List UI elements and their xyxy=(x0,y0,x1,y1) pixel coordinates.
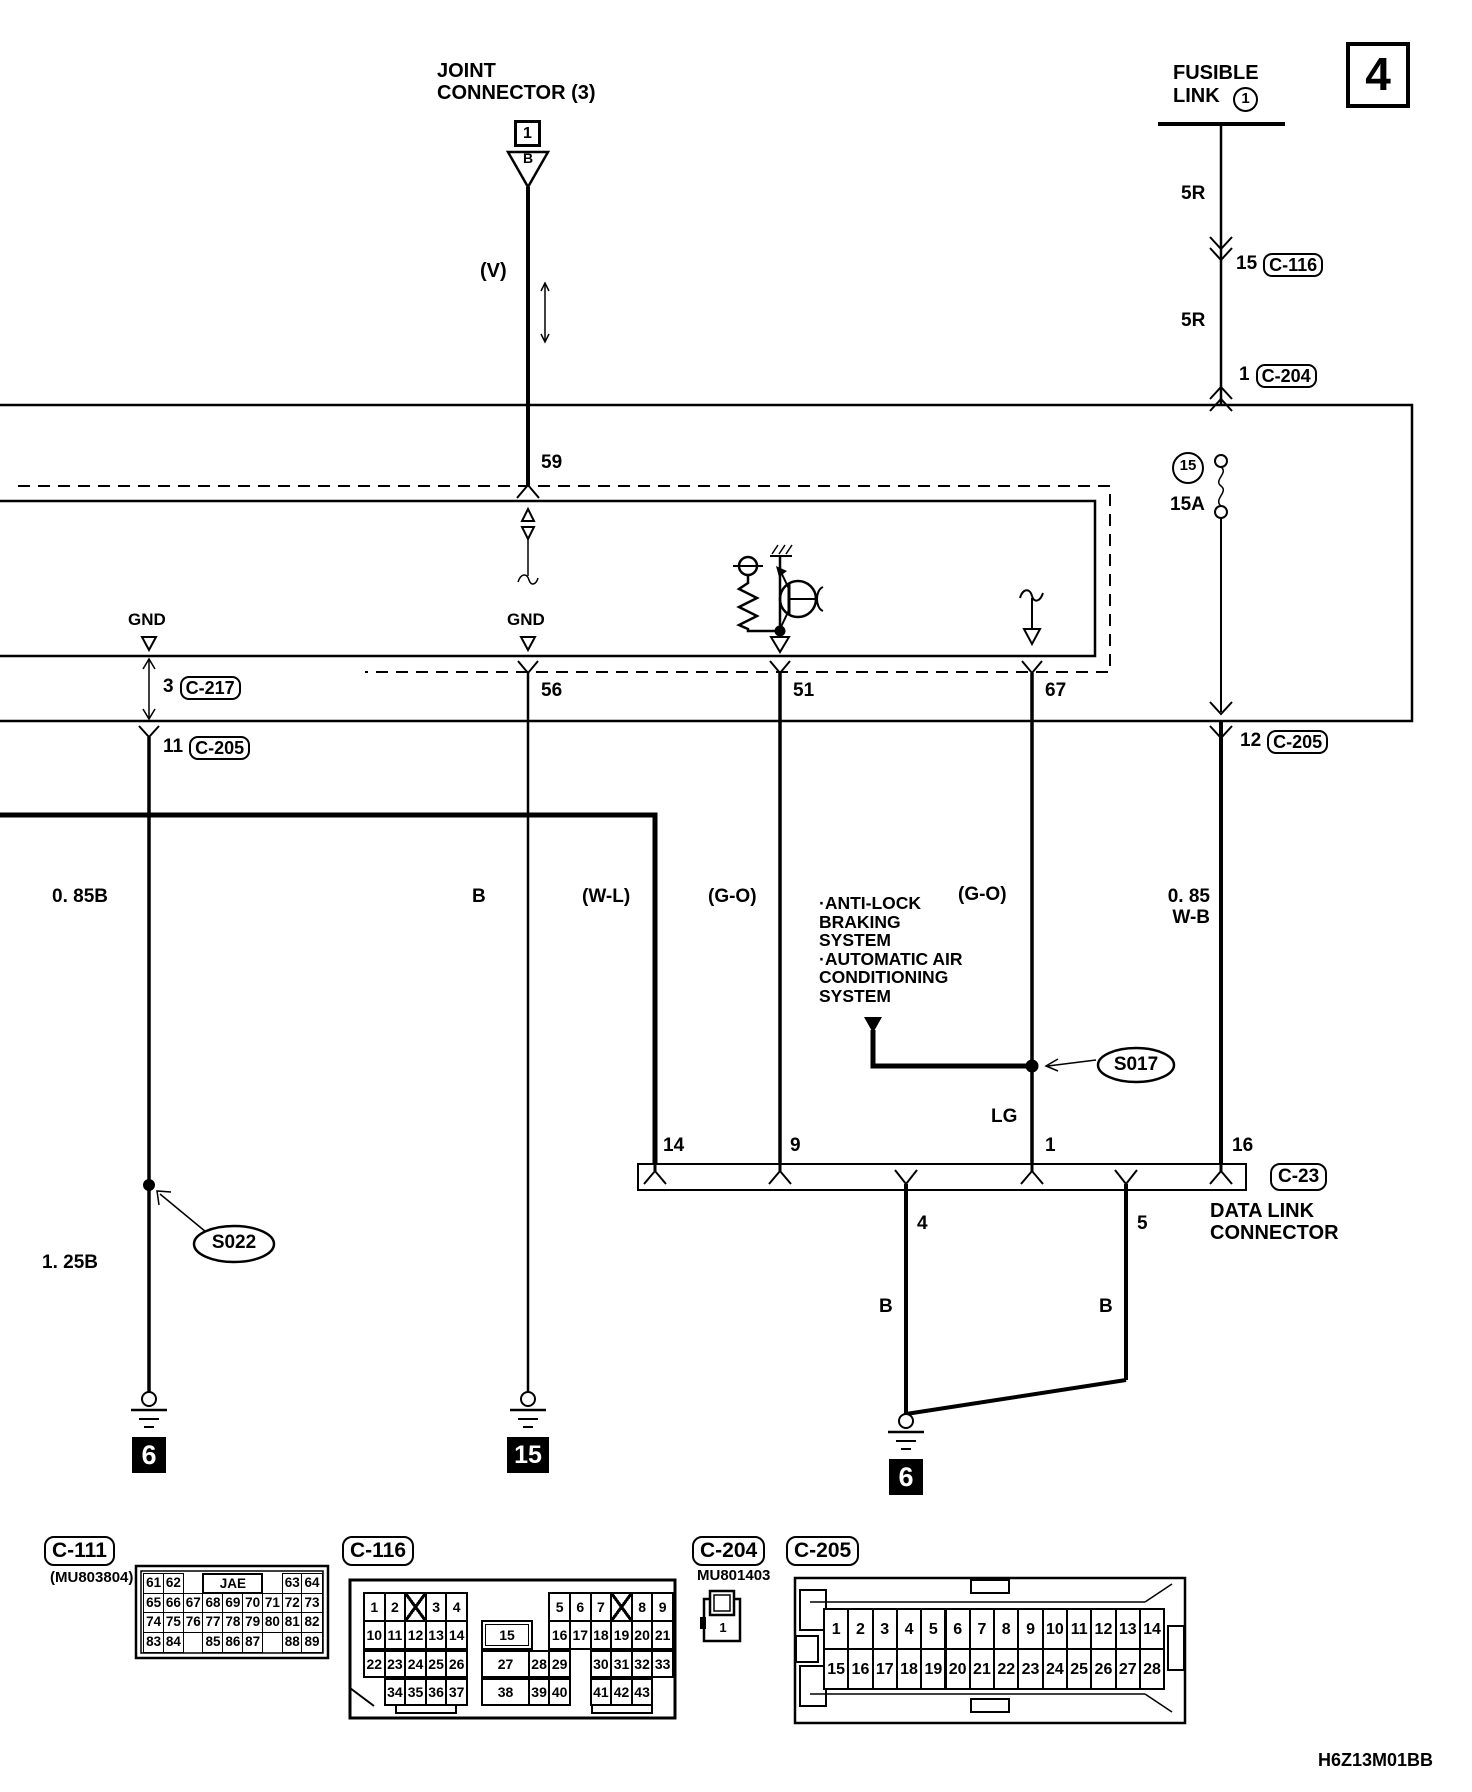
c205-pin-6: 6 xyxy=(945,1608,971,1650)
connector-part-c204: MU801403 xyxy=(697,1568,770,1585)
transistor-symbol xyxy=(733,545,823,652)
joint-connector-number-box: 1 xyxy=(514,120,541,147)
c205-pin-28: 28 xyxy=(1139,1648,1165,1690)
c111-pin-78: 78 xyxy=(222,1612,243,1633)
c111-pin-61: 61 xyxy=(143,1573,164,1594)
c111-pin-63: 63 xyxy=(282,1573,303,1594)
ground-symbol-dlc xyxy=(888,1414,924,1449)
c205-pin-18: 18 xyxy=(896,1648,922,1690)
c205-pin-23: 23 xyxy=(1017,1648,1043,1690)
connector-label-c111: C-111 xyxy=(44,1536,115,1566)
c111-pin-74: 74 xyxy=(143,1612,164,1633)
ecu-inner-box xyxy=(0,501,1095,656)
c116-pin-18: 18 xyxy=(590,1620,613,1650)
c111-pin-87: 87 xyxy=(242,1632,263,1653)
c111-pin-89: 89 xyxy=(301,1632,322,1653)
c204-pin-1: 1 xyxy=(712,1621,734,1636)
ground-id-dlc: 6 xyxy=(889,1459,923,1495)
c111-pin-77: 77 xyxy=(202,1612,223,1633)
c116-pin-24: 24 xyxy=(404,1650,427,1678)
dlc-pin4-label: 4 xyxy=(917,1213,928,1234)
c116-pin-25: 25 xyxy=(425,1650,448,1678)
gnd-label-mid: GND xyxy=(507,610,545,629)
c116-pin-42: 42 xyxy=(610,1678,633,1706)
c111-pin-JAE: JAE xyxy=(202,1573,263,1594)
pin56-wire xyxy=(518,661,538,1392)
connector-label-c205: C-205 xyxy=(786,1536,859,1566)
c205-pin-1: 1 xyxy=(823,1608,849,1650)
c116-pin-blocked xyxy=(404,1592,427,1622)
c111-pin-67: 67 xyxy=(183,1593,204,1614)
pin59-label: 59 xyxy=(541,452,562,473)
abs-system-note: ·ANTI-LOCK BRAKING SYSTEM ·AUTOMATIC AIR… xyxy=(819,894,963,1006)
abs-branch-wire xyxy=(864,1017,1039,1073)
c116-pin-3: 3 xyxy=(425,1592,448,1622)
c116-pin-13: 13 xyxy=(425,1620,448,1650)
c116-pin-2: 2 xyxy=(384,1592,407,1622)
c116-pin-33: 33 xyxy=(651,1650,674,1678)
c116-pin-5: 5 xyxy=(548,1592,571,1622)
c205-pin-7: 7 xyxy=(969,1608,995,1650)
c116-pin-8: 8 xyxy=(631,1592,654,1622)
fuse-number: 15 xyxy=(1174,458,1202,475)
c205-pin-grid: 1234567891011121314151617181920212223242… xyxy=(823,1608,1167,1690)
wire-color-v: (V) xyxy=(480,260,507,282)
c205-pin-17: 17 xyxy=(872,1648,898,1690)
wire-5r-lower: 5R xyxy=(1181,310,1205,331)
c116-pin-19: 19 xyxy=(610,1620,633,1650)
c116-pin-30: 30 xyxy=(590,1650,613,1678)
c116-pin-17: 17 xyxy=(569,1620,592,1650)
c205-pin-9: 9 xyxy=(1017,1608,1043,1650)
wl-bus-wire xyxy=(0,815,655,1171)
c116-pin-21: 21 xyxy=(651,1620,674,1650)
wire-color-125b: 1. 25B xyxy=(42,1252,98,1273)
pin-3: 3 xyxy=(163,676,174,698)
data-link-connector-strip xyxy=(638,1164,1246,1190)
c116-pin-38: 38 xyxy=(481,1678,530,1706)
c205-pin-24: 24 xyxy=(1042,1648,1068,1690)
c111-pin-68: 68 xyxy=(202,1593,223,1614)
fusible-link-label-2: LINK xyxy=(1173,85,1220,107)
wire-color-go-1: (G-O) xyxy=(708,886,757,907)
fusible-link-number-circle: 1 xyxy=(1233,87,1258,112)
c111-pin-79: 79 xyxy=(242,1612,263,1633)
c116-pin-39: 39 xyxy=(528,1678,551,1706)
c116-pin-14: 14 xyxy=(445,1620,468,1650)
c116-pin-15: 15 xyxy=(481,1620,533,1650)
c205-pin-19: 19 xyxy=(920,1648,946,1690)
c116-pin-32: 32 xyxy=(631,1650,654,1678)
fuse-rating: 15A xyxy=(1170,494,1205,515)
c111-pin-80: 80 xyxy=(262,1612,283,1633)
dlc-pin5-label: 5 xyxy=(1137,1213,1148,1234)
connector-label-c116: C-116 xyxy=(342,1536,414,1566)
c116-pin-35: 35 xyxy=(404,1678,427,1706)
c116-pin-37: 37 xyxy=(445,1678,468,1706)
wire-color-b-dlc2: B xyxy=(1099,1296,1113,1317)
ground-symbol-mid xyxy=(510,1392,546,1427)
wire-color-085b: 0. 85B xyxy=(52,886,108,907)
c205-pin-3: 3 xyxy=(872,1608,898,1650)
c111-pin-82: 82 xyxy=(301,1612,322,1633)
c116-pin-34: 34 xyxy=(384,1678,407,1706)
pin56-label: 56 xyxy=(541,680,562,701)
splice-s017-label: S017 xyxy=(1098,1054,1174,1075)
pin67-wire xyxy=(1022,661,1042,1171)
dlc-pin1-label: 1 xyxy=(1045,1135,1056,1156)
connector-badge-c205a: C-205 xyxy=(189,736,250,760)
document-code: H6Z13M01BB xyxy=(1318,1750,1433,1770)
ecu-outer-box xyxy=(0,405,1412,721)
c205-pin-22: 22 xyxy=(993,1648,1019,1690)
c205-pin-25: 25 xyxy=(1066,1648,1092,1690)
ground-id-mid: 15 xyxy=(507,1437,549,1473)
c116-pin-4: 4 xyxy=(445,1592,468,1622)
c205-pin-2: 2 xyxy=(847,1608,873,1650)
wire-color-wl: (W-L) xyxy=(582,886,630,907)
joint-connector-label: JOINT CONNECTOR (3) xyxy=(437,60,596,105)
c205-pin-11: 11 xyxy=(1066,1608,1092,1650)
junction-connector-ref-c204: 1 C-204 xyxy=(1239,364,1317,388)
inline-connector-ref-c116: 15 C-116 xyxy=(1236,253,1323,277)
ecu-dashed-box xyxy=(18,486,1110,672)
c116-pin-40: 40 xyxy=(548,1678,571,1706)
wire-color-b-mid: B xyxy=(472,886,486,907)
pin-ref-11-c205: 11 C-205 xyxy=(163,736,250,760)
wire-color-lg: LG xyxy=(991,1106,1017,1127)
gnd-label-left: GND xyxy=(128,610,166,629)
c116-pin-28: 28 xyxy=(528,1650,551,1678)
c205-pin-5: 5 xyxy=(920,1608,946,1650)
gnd-triangle-left xyxy=(142,637,156,650)
c205-pin-27: 27 xyxy=(1115,1648,1141,1690)
c111-pin-64: 64 xyxy=(301,1573,322,1594)
c205-pin-12: 12 xyxy=(1090,1608,1116,1650)
ground-symbol-left xyxy=(131,1392,167,1427)
c116-pin-16: 16 xyxy=(548,1620,571,1650)
c116-pin-15-inner-box: 15 xyxy=(485,1624,529,1646)
joint-connector-triangle-code: B xyxy=(519,151,537,167)
c116-pin-12: 12 xyxy=(404,1620,427,1650)
connector-badge-c205b: C-205 xyxy=(1267,730,1328,754)
dlc-ground-wires xyxy=(906,1184,1126,1414)
connector-part-c111: (MU803804) xyxy=(50,1570,133,1587)
c111-pin-65: 65 xyxy=(143,1593,164,1614)
c111-pin-83: 83 xyxy=(143,1632,164,1653)
c111-pin-73: 73 xyxy=(301,1593,322,1614)
page-number-box: 4 xyxy=(1346,42,1410,108)
inline-pin-15: 15 xyxy=(1236,253,1257,275)
connector-badge-c23: C-23 xyxy=(1270,1163,1327,1191)
c205-pin-4: 4 xyxy=(896,1608,922,1650)
c116-pin-26: 26 xyxy=(445,1650,468,1678)
c205-pin-14: 14 xyxy=(1139,1608,1165,1650)
c116-pin-20: 20 xyxy=(631,1620,654,1650)
ground-id-left: 6 xyxy=(132,1437,166,1473)
c116-pin-43: 43 xyxy=(631,1678,654,1706)
connector-label-c204: C-204 xyxy=(692,1536,765,1566)
c111-pin-69: 69 xyxy=(222,1593,243,1614)
c116-pin-blocked xyxy=(610,1592,633,1622)
pin51-wire xyxy=(770,661,790,1171)
pin-ref-3-c217: 3 C-217 xyxy=(163,676,241,700)
gnd-triangle-mid xyxy=(521,637,535,650)
c111-pin-72: 72 xyxy=(282,1593,303,1614)
c205-pin-20: 20 xyxy=(945,1648,971,1690)
c111-pin-86: 86 xyxy=(222,1632,243,1653)
c116-pin-23: 23 xyxy=(384,1650,407,1678)
c116-pin-31: 31 xyxy=(610,1650,633,1678)
connector-badge-c204: C-204 xyxy=(1256,364,1317,388)
wire-color-go-2: (G-O) xyxy=(958,884,1007,905)
c111-pin-grid: 6162JAE636465666768697071727374757677787… xyxy=(143,1573,323,1653)
c205-pin-10: 10 xyxy=(1042,1608,1068,1650)
c116-pin-36: 36 xyxy=(425,1678,448,1706)
c205-pin-15: 15 xyxy=(823,1648,849,1690)
c111-pin-85: 85 xyxy=(202,1632,223,1653)
fusible-link-label-1: FUSIBLE xyxy=(1173,62,1259,84)
wiring-diagram-page: JOINT CONNECTOR (3) 1 B (V) 59 4 FUSIBLE… xyxy=(0,0,1472,1792)
pin-12: 12 xyxy=(1240,730,1261,752)
pin51-label: 51 xyxy=(793,680,814,701)
wire-color-085wb: 0. 85 W-B xyxy=(1146,886,1210,929)
c111-pin-66: 66 xyxy=(163,1593,184,1614)
wire-color-b-dlc1: B xyxy=(879,1296,893,1317)
c116-pin-6: 6 xyxy=(569,1592,592,1622)
splice-s022-label: S022 xyxy=(194,1232,274,1253)
dlc-pin14-label: 14 xyxy=(663,1135,684,1156)
connector-badge-c217: C-217 xyxy=(180,676,241,700)
pin-11: 11 xyxy=(163,736,183,758)
c116-pin-22: 22 xyxy=(363,1650,386,1678)
dlc-pin16-label: 16 xyxy=(1232,1135,1253,1156)
c116-pin-11: 11 xyxy=(384,1620,407,1650)
c205-pin-21: 21 xyxy=(969,1648,995,1690)
junction-pin-1: 1 xyxy=(1239,364,1250,386)
pin67-label: 67 xyxy=(1045,680,1066,701)
internal-connection-symbol xyxy=(518,509,538,584)
c116-pin-27: 27 xyxy=(481,1650,530,1678)
c111-pin-71: 71 xyxy=(262,1593,283,1614)
c116-pin-29: 29 xyxy=(548,1650,571,1678)
c111-pin-84: 84 xyxy=(163,1632,184,1653)
c205-pin-13: 13 xyxy=(1115,1608,1141,1650)
c111-pin-81: 81 xyxy=(282,1612,303,1633)
c205-pin-26: 26 xyxy=(1090,1648,1116,1690)
c111-pin-75: 75 xyxy=(163,1612,184,1633)
c116-pin-9: 9 xyxy=(651,1592,674,1622)
c116-pin-7: 7 xyxy=(590,1592,613,1622)
c111-pin-88: 88 xyxy=(282,1632,303,1653)
connector-badge-c116: C-116 xyxy=(1263,253,1323,277)
c111-pin-62: 62 xyxy=(163,1573,184,1594)
c205-pin-8: 8 xyxy=(993,1608,1019,1650)
wire-5r-upper: 5R xyxy=(1181,183,1205,204)
switch-symbol xyxy=(1020,590,1043,644)
c116-pin-grid: 1234567891011121314151617181920212223242… xyxy=(363,1592,675,1706)
left-ground-pin xyxy=(139,659,159,1392)
c116-pin-41: 41 xyxy=(590,1678,613,1706)
c111-pin-76: 76 xyxy=(183,1612,204,1633)
c116-pin-1: 1 xyxy=(363,1592,386,1622)
c111-pin-70: 70 xyxy=(242,1593,263,1614)
c205-pin-16: 16 xyxy=(847,1648,873,1690)
pin-ref-12-c205: 12 C-205 xyxy=(1240,730,1328,754)
c116-pin-10: 10 xyxy=(363,1620,386,1650)
dlc-pin9-label: 9 xyxy=(790,1135,801,1156)
dlc-name: DATA LINK CONNECTOR xyxy=(1210,1200,1339,1245)
